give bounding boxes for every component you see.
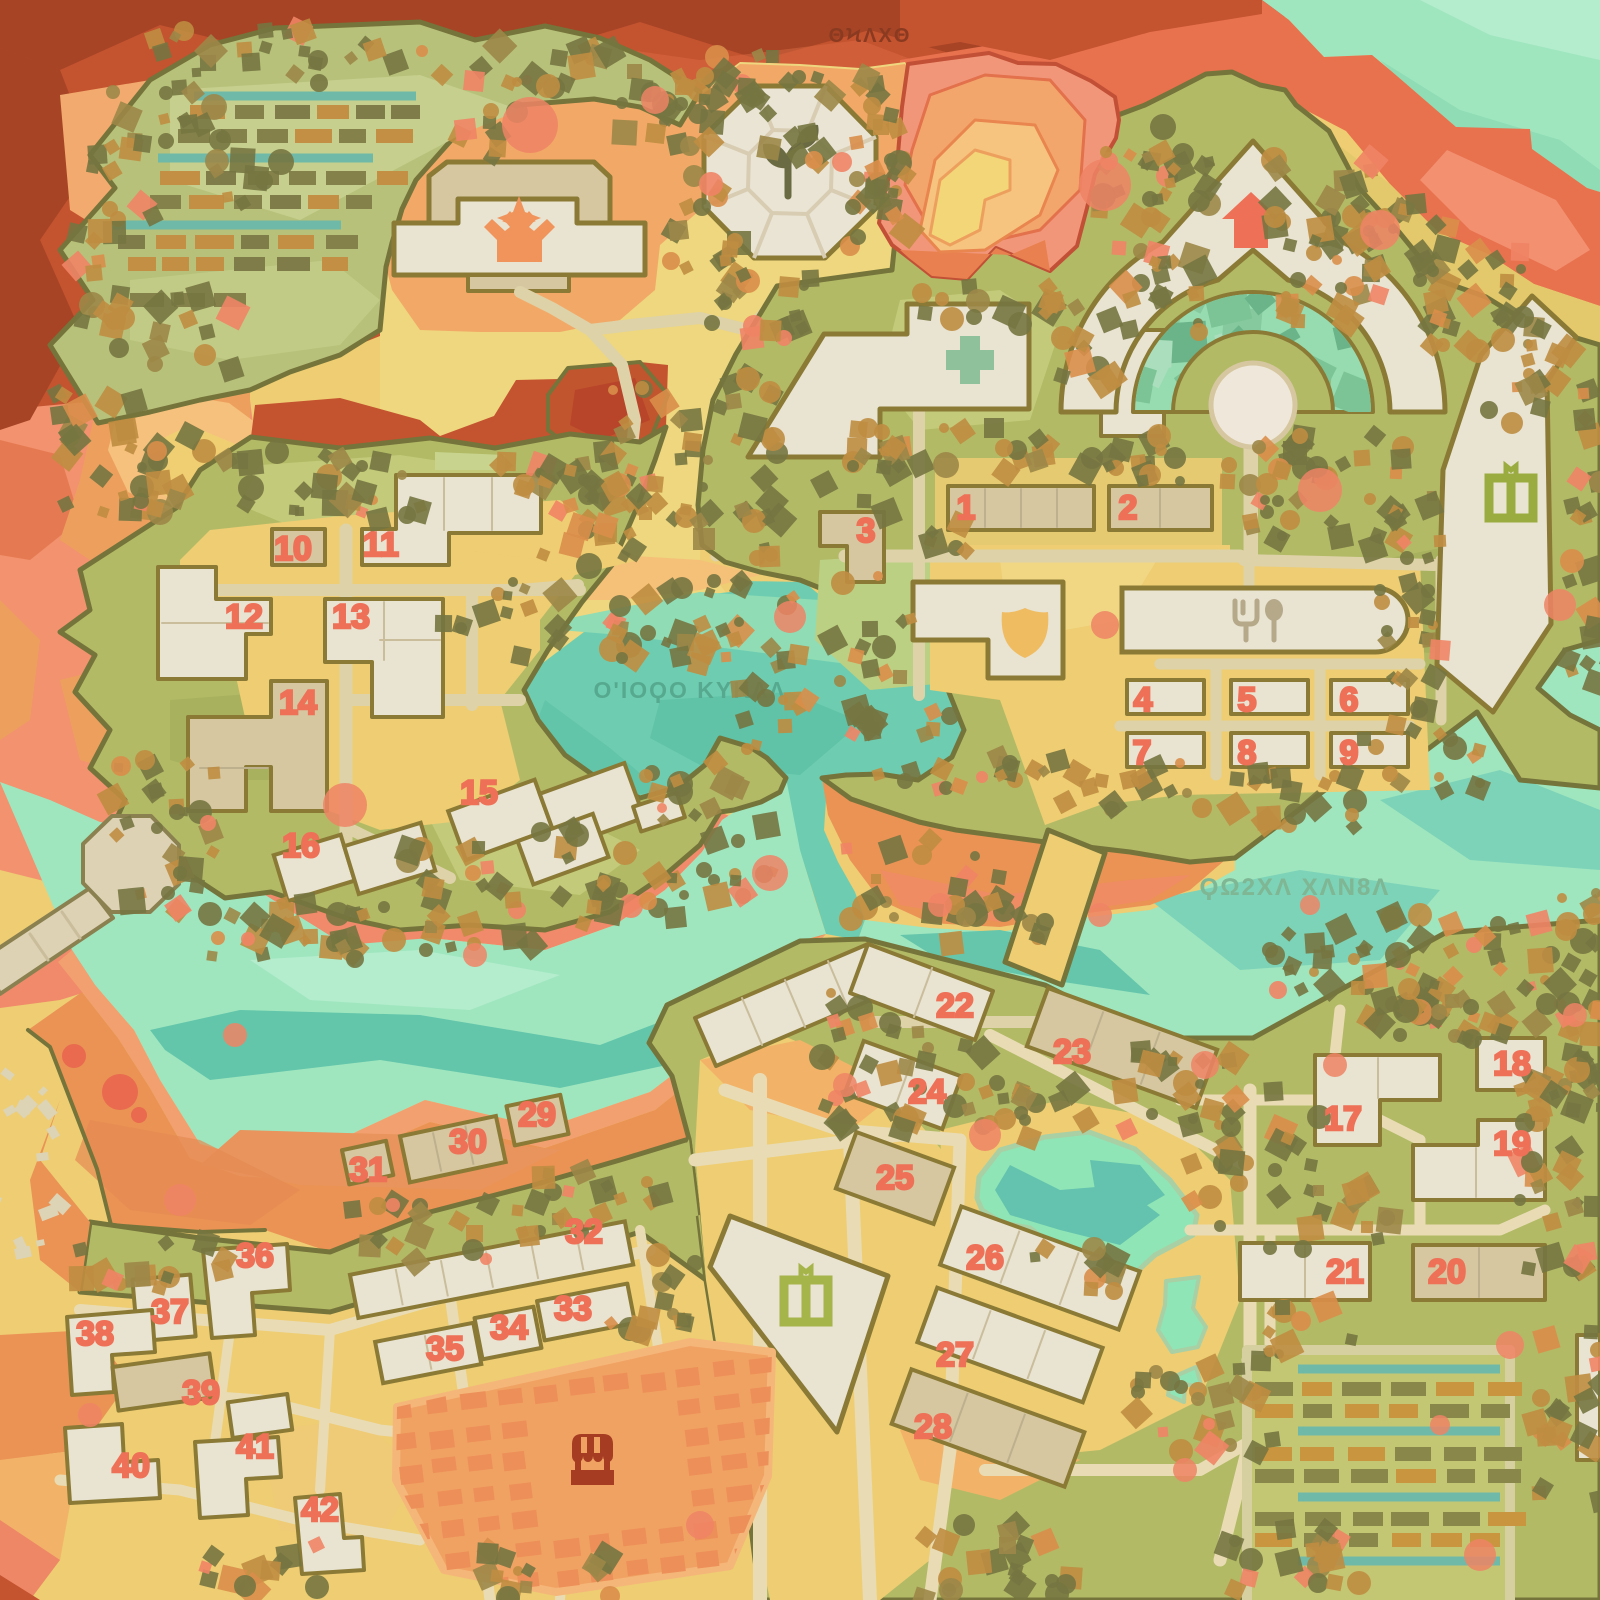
- svg-text:28: 28: [914, 1408, 952, 1446]
- svg-text:25: 25: [876, 1159, 914, 1197]
- svg-text:37: 37: [151, 1293, 189, 1331]
- svg-text:29: 29: [518, 1096, 556, 1134]
- svg-text:ΘϞΛΧΘ: ΘϞΛΧΘ: [829, 25, 912, 47]
- svg-text:7: 7: [1133, 734, 1152, 772]
- svg-text:3: 3: [857, 512, 876, 550]
- svg-text:26: 26: [966, 1239, 1004, 1277]
- svg-text:4: 4: [1134, 681, 1153, 719]
- svg-text:36: 36: [236, 1237, 274, 1275]
- svg-text:1: 1: [957, 489, 976, 527]
- svg-text:10: 10: [274, 530, 312, 568]
- svg-text:40: 40: [112, 1447, 150, 1485]
- svg-text:38: 38: [76, 1315, 114, 1353]
- svg-text:ϘΩ2ΧΛ ΧΛΝ8Λ: ϘΩ2ΧΛ ΧΛΝ8Λ: [1200, 874, 1391, 901]
- svg-text:30: 30: [449, 1123, 487, 1161]
- svg-text:16: 16: [282, 827, 320, 865]
- svg-text:21: 21: [1326, 1253, 1364, 1291]
- svg-text:9: 9: [1340, 734, 1359, 772]
- svg-text:31: 31: [349, 1151, 387, 1189]
- svg-text:35: 35: [426, 1330, 464, 1368]
- svg-text:39: 39: [182, 1374, 220, 1412]
- svg-text:18: 18: [1493, 1045, 1531, 1083]
- svg-text:11: 11: [363, 526, 399, 564]
- svg-text:33: 33: [554, 1290, 592, 1328]
- svg-text:19: 19: [1493, 1125, 1531, 1163]
- svg-text:22: 22: [936, 987, 974, 1025]
- svg-text:41: 41: [236, 1428, 274, 1466]
- svg-text:8: 8: [1238, 734, 1257, 772]
- svg-text:24: 24: [908, 1073, 946, 1111]
- svg-text:13: 13: [332, 598, 370, 636]
- svg-text:23: 23: [1053, 1033, 1091, 1071]
- svg-text:15: 15: [460, 774, 498, 812]
- svg-text:5: 5: [1238, 681, 1257, 719]
- svg-text:12: 12: [225, 598, 263, 636]
- svg-text:27: 27: [936, 1336, 974, 1374]
- svg-text:32: 32: [565, 1213, 603, 1251]
- svg-text:14: 14: [279, 684, 317, 722]
- svg-text:20: 20: [1428, 1253, 1466, 1291]
- svg-text:6: 6: [1340, 681, 1359, 719]
- svg-text:42: 42: [301, 1491, 339, 1529]
- svg-text:2: 2: [1119, 489, 1138, 527]
- svg-text:17: 17: [1324, 1100, 1362, 1138]
- svg-text:34: 34: [490, 1309, 528, 1347]
